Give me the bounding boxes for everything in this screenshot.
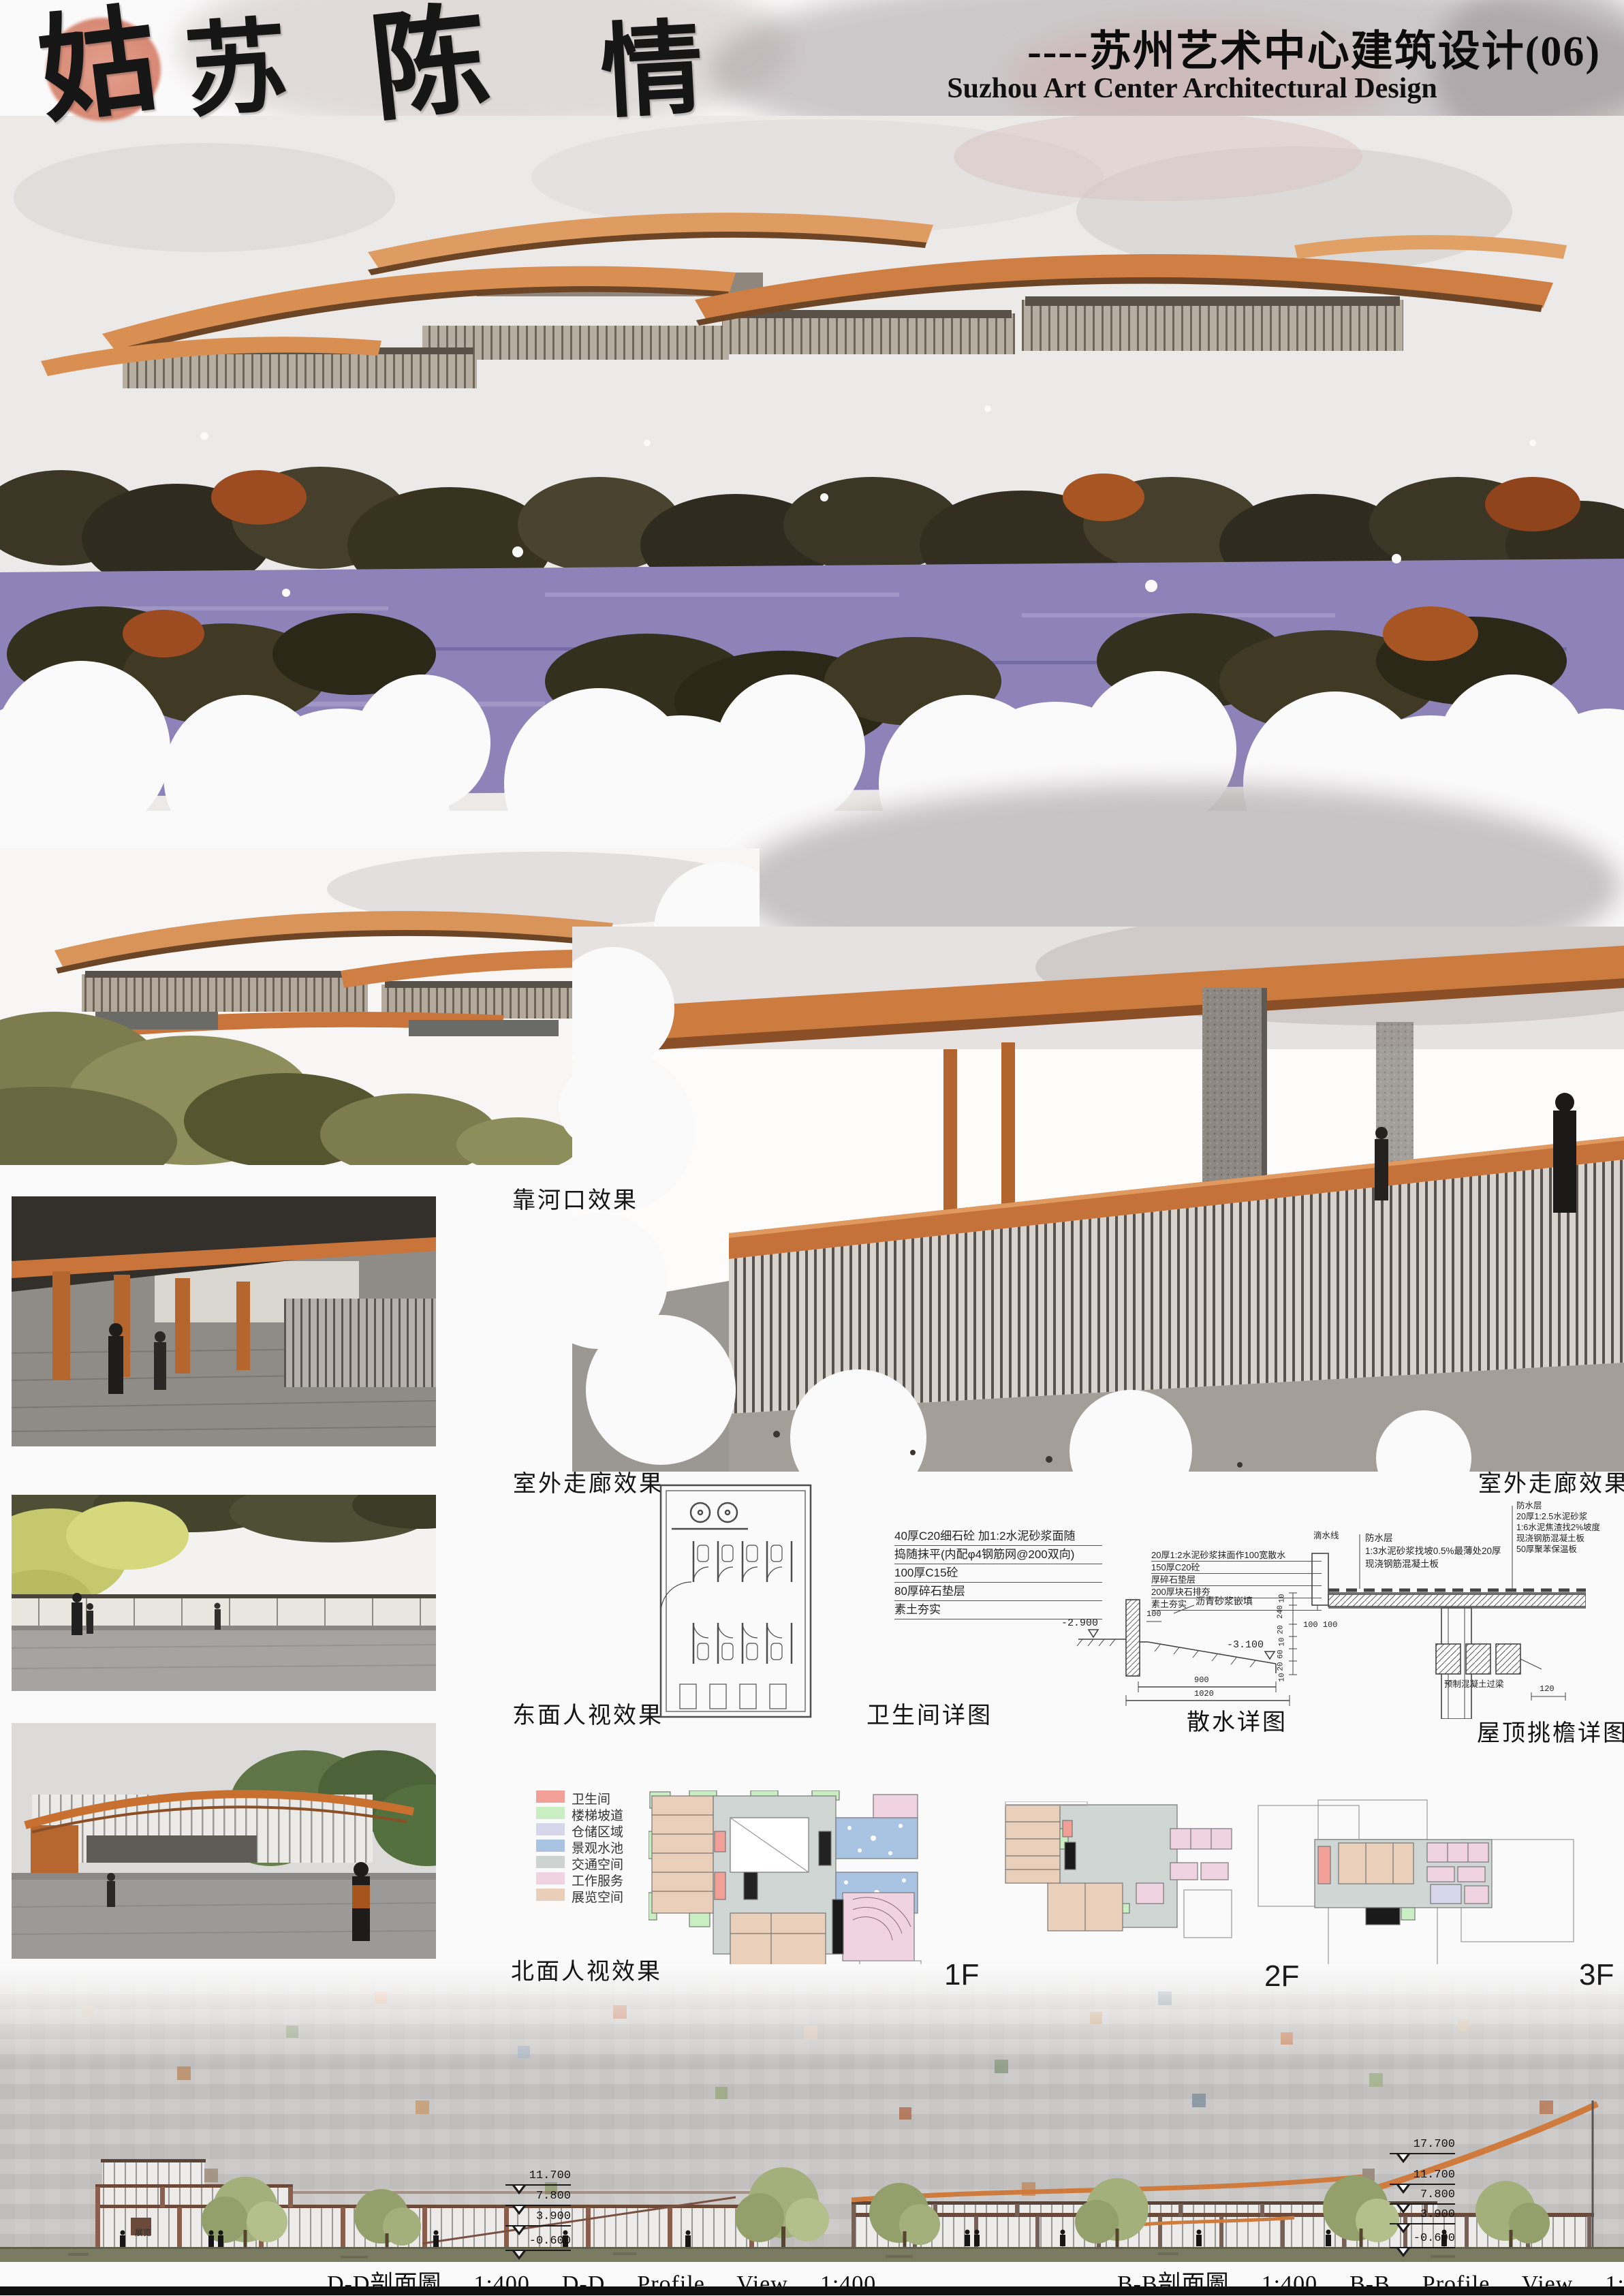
label-eave-detail: 屋顶挑檐详图 (1477, 1714, 1624, 1748)
calligraphy-char-3: 陈 (365, 1, 494, 129)
eave-note: 1:3水泥砂浆找坡0.5%最薄处20厚 (1365, 1545, 1512, 1557)
east-view-photo-image (12, 1495, 436, 1691)
eave-note: 现浇钢筋混凝土板 (1516, 1533, 1591, 1544)
eave-dim: 10 (1279, 1637, 1287, 1646)
section-drawings-band (0, 1964, 1624, 2262)
level-value: 11.700 (1414, 2169, 1455, 2182)
legend-label: 仓储区域 (572, 1822, 623, 1840)
eave-dim: 20 (1277, 1625, 1285, 1634)
eave-dim: 60 (1277, 1649, 1285, 1658)
legend-swatch (536, 1872, 565, 1884)
level-value: 7.800 (1420, 2188, 1455, 2201)
toilet-detail-drawing (653, 1480, 819, 1722)
legend-swatch (536, 1856, 565, 1868)
apron-note: 捣随抹平(内配φ4钢筋网@200双向) (894, 1546, 1102, 1564)
eave-beam-note: 预制混凝土过梁 (1444, 1679, 1504, 1690)
courtyard-photo-image (12, 1196, 436, 1446)
legend-label: 交通空间 (572, 1855, 623, 1873)
label-floor-3f: 3F (1579, 1958, 1614, 1992)
level-value: 3.900 (1420, 2208, 1455, 2221)
apron-note: 素土夯实 (894, 1601, 1102, 1619)
eave-note: 20厚1:2.5水泥砂浆 (1516, 1511, 1591, 1522)
calligraphy-char-4: 情 (598, 18, 706, 125)
eave-note: 50厚聚苯保温板 (1516, 1544, 1591, 1555)
bottom-black-bar (0, 2286, 1624, 2295)
eave-detail-drawing: 滴水线 防水层 1:3水泥砂浆找坡0.5%最薄处20厚 现浇钢筋混凝土板 防水层… (1272, 1491, 1586, 1719)
label-river-mouth-view: 靠河口效果 (512, 1181, 638, 1215)
calligraphy-char-1: 姑 (33, 1, 163, 132)
legend-label: 楼梯坡道 (572, 1805, 623, 1824)
floor-plan-1f (649, 1790, 928, 1976)
floor-plan-2f (1000, 1801, 1235, 1942)
apron-note: 100厚C15砼 (894, 1564, 1102, 1583)
title-chinese: ----苏州艺术中心建筑设计(06) (749, 16, 1601, 78)
label-corridor-view-left: 室外走廊效果 (513, 1465, 664, 1498)
apron-dim-1020: 1020 (1194, 1689, 1214, 1698)
level-value: -0.600 (1414, 2232, 1455, 2245)
level-value: 17.700 (1414, 2138, 1455, 2151)
legend-label: 景观水池 (572, 1838, 623, 1857)
eave-dim: 20 (1277, 1662, 1285, 1671)
eave-note: 防水层 (1365, 1532, 1512, 1545)
level-value: -0.600 (529, 2235, 571, 2248)
legend-label: 工作服务 (572, 1871, 623, 1889)
apron-dim-100: 100 (1146, 1609, 1161, 1619)
legend-swatch (536, 1823, 565, 1835)
legend-swatch (536, 1840, 565, 1852)
label-north-view: 北面人视效果 (511, 1953, 662, 1986)
apron-dim-900: 900 (1194, 1675, 1209, 1685)
presentation-board: 靠河口效果 室外走廊效果 室外走廊效果 (0, 0, 1624, 2296)
label-floor-1f: 1F (944, 1958, 979, 1992)
level-value: 3.900 (536, 2210, 571, 2223)
legend-swatch (536, 1807, 565, 1819)
legend-label: 卫生间 (572, 1789, 610, 1808)
hero-aerial-rendering-image (0, 116, 1624, 848)
floor-plan-3f (1257, 1799, 1577, 1969)
legend-swatch (536, 1790, 565, 1803)
section-room-label: 展览 (135, 2227, 151, 2238)
calligraphy-char-2: 苏 (182, 16, 291, 125)
apron-note: 80厚碎石垫层 (894, 1583, 1102, 1601)
label-east-view: 东面人视效果 (512, 1696, 663, 1730)
apron-note: 40厚C20细石砼 加1:2水泥砂浆面随 (894, 1527, 1102, 1546)
eave-dim: 10 (1279, 1594, 1287, 1602)
corridor-rendering-image (572, 927, 1624, 1472)
eave-note: 1:6水泥焦渣找2%坡度 (1516, 1522, 1591, 1533)
eave-note: 防水层 (1516, 1500, 1591, 1511)
eave-dim: 240 (1277, 1605, 1285, 1619)
label-floor-2f: 2F (1264, 1959, 1299, 1994)
apron-fill-note: 沥青砂浆嵌填 (1196, 1596, 1253, 1607)
title-english: Suzhou Art Center Architectural Design (790, 72, 1594, 105)
legend-label: 展览空间 (572, 1887, 623, 1906)
apron-level-left: -2.900 (1061, 1617, 1098, 1629)
level-value: 11.700 (529, 2169, 571, 2182)
eave-dim: 10 (1279, 1673, 1287, 1681)
eave-drip-note: 滴水线 (1313, 1530, 1339, 1541)
apron-level-right: -3.100 (1227, 1639, 1264, 1651)
eave-dim-120: 120 (1540, 1684, 1555, 1694)
eave-note: 现浇钢筋混凝土板 (1365, 1557, 1512, 1570)
north-view-photo-image (12, 1723, 436, 1959)
level-value: 7.800 (536, 2190, 571, 2203)
legend-swatch (536, 1889, 565, 1901)
